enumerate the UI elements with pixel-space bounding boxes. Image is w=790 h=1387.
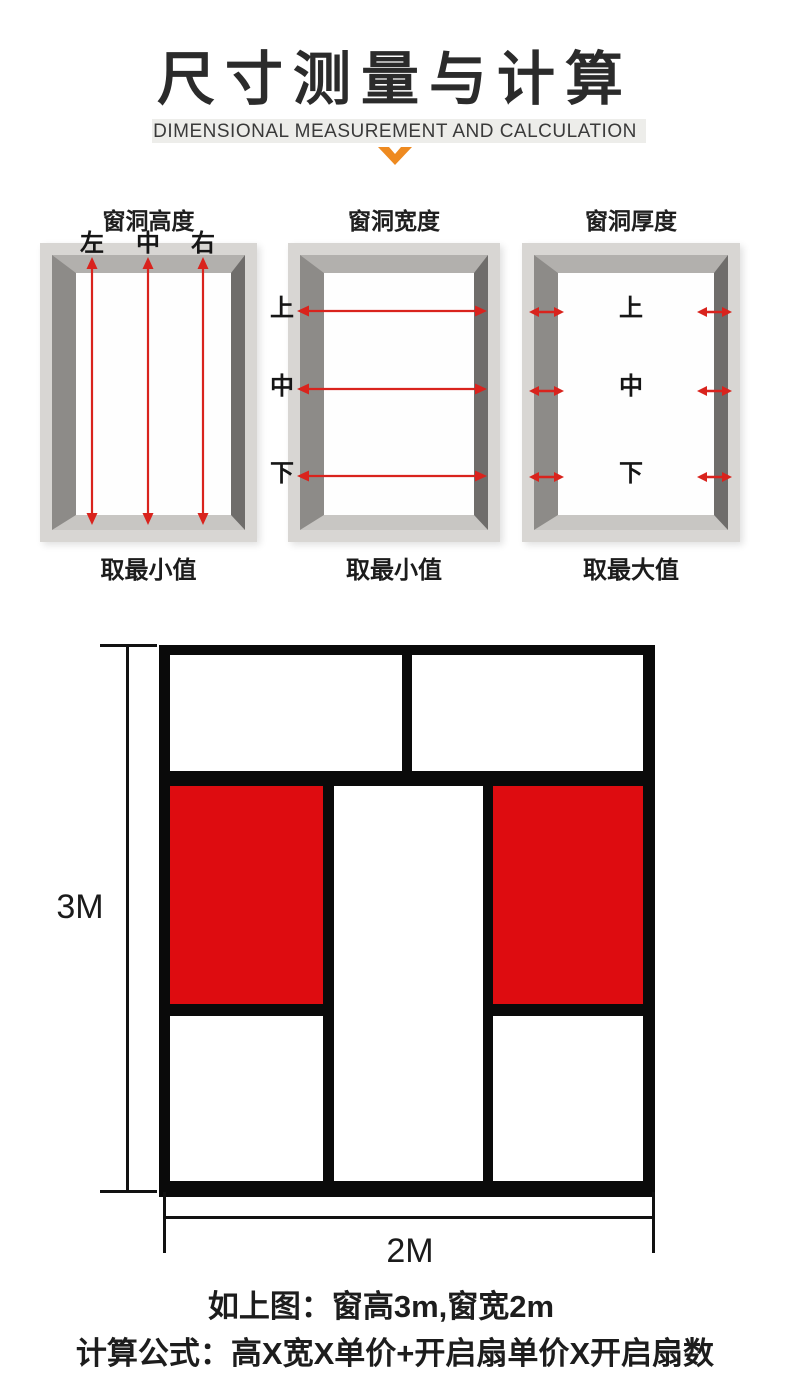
height-dimension-label: 3M (40, 888, 120, 927)
measure-label-bottom: 下 (265, 461, 299, 487)
dim-line-vertical (126, 646, 129, 1193)
diagram-caption: 取最小值 (288, 550, 500, 585)
measure-label-center: 中 (131, 231, 165, 257)
diagram-title: 窗洞宽度 (288, 202, 500, 236)
dim-line-horizontal (163, 1216, 655, 1219)
measure-label-bottom: 下 (614, 461, 648, 487)
window-elevation-diagram (159, 645, 655, 1197)
diagram-caption: 取最大值 (522, 550, 740, 585)
infographic-page: 尺寸测量与计算 DIMENSIONAL MEASUREMENT AND CALC… (0, 0, 790, 1387)
opening-sash-left (170, 786, 323, 1004)
pane-top-right (412, 655, 643, 771)
dim-tick-right (652, 1192, 655, 1253)
chevron-down-icon (378, 147, 412, 165)
dim-tick-bottom (100, 1190, 157, 1193)
height-measurement-arrows (40, 243, 257, 542)
width-dimension-label: 2M (360, 1232, 460, 1271)
dim-tick-left (163, 1192, 166, 1253)
pane-top-left (170, 655, 402, 771)
pane-bottom-left (170, 1016, 323, 1181)
pane-bottom-right (493, 1016, 643, 1181)
measure-label-right: 右 (186, 231, 220, 257)
page-title: 尺寸测量与计算 (0, 48, 790, 112)
opening-sash-right (493, 786, 643, 1004)
diagram-title: 窗洞厚度 (522, 202, 740, 236)
measure-label-top: 上 (614, 296, 648, 322)
diagram-caption: 取最小值 (40, 550, 257, 585)
width-measurement-arrows (288, 243, 500, 542)
measure-label-middle: 中 (265, 374, 299, 400)
measure-label-left: 左 (75, 231, 109, 257)
measure-label-middle: 中 (614, 374, 648, 400)
example-note: 如上图：窗高3m,窗宽2m (0, 1281, 776, 1326)
formula-note: 计算公式：高X宽X单价+开启扇单价X开启扇数 (0, 1328, 790, 1373)
measure-label-top: 上 (265, 296, 299, 322)
page-subtitle: DIMENSIONAL MEASUREMENT AND CALCULATION (0, 121, 790, 143)
pane-center (334, 786, 483, 1181)
